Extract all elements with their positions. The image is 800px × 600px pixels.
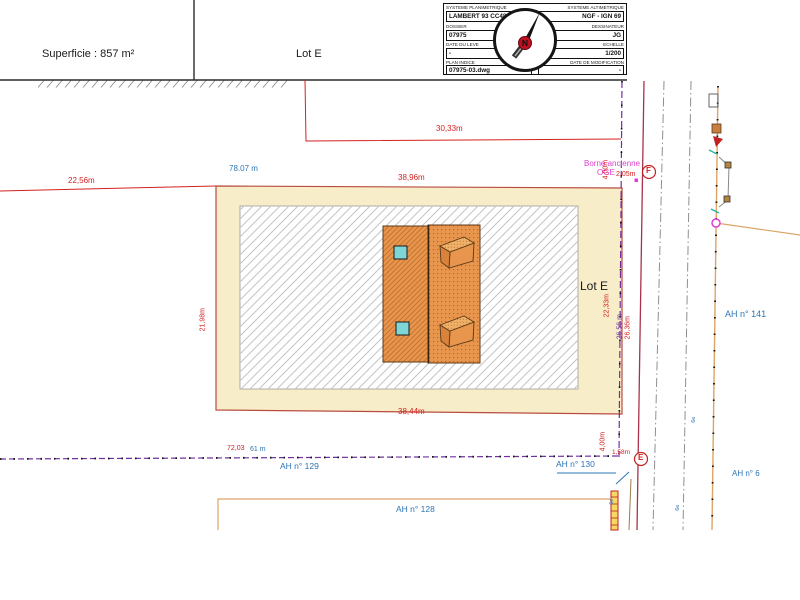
valve-symbol-top: [709, 150, 717, 154]
junction-box-top: [725, 162, 731, 168]
roof-window-bottom: [396, 322, 409, 335]
dim-22-56: 22,56m: [68, 177, 95, 185]
dim-1-58: 1,58m: [612, 450, 630, 457]
tiny-mark-3: 6e: [692, 417, 698, 423]
title-block: SYSTEME PLANIMETRIQUE LAMBERT 93 CC48 SY…: [443, 3, 627, 75]
lot-header-label: Lot E: [296, 49, 322, 61]
tiny-mark-1: 6e: [610, 499, 616, 505]
retaining-wall-symbol: [611, 491, 618, 530]
junction-box-bottom: [724, 196, 730, 202]
parcel-130-leader-line: [616, 472, 629, 484]
lot-e-label: Lot E: [580, 280, 608, 293]
north-setback-dim-line: [305, 80, 621, 141]
pole-symbol: [712, 124, 721, 133]
manhole-symbol: [712, 219, 720, 227]
parcel-128-label: AH n° 128: [396, 505, 435, 514]
dim-21-98: 21,98m: [200, 308, 207, 331]
dim-2-05: 2,05m: [616, 171, 635, 178]
dim-4-00-bottom: 4,00m: [600, 432, 607, 451]
tiny-mark-2: 6e: [676, 505, 682, 511]
flow-arrow-symbol: [713, 136, 723, 147]
parcel-6-label: AH n° 6: [732, 470, 760, 478]
survey-point-f-label: F: [646, 167, 651, 175]
parcel-130-label: AH n° 130: [556, 460, 595, 469]
dim-78-07: 78.07 m: [229, 165, 258, 173]
parcel-129-label: AH n° 129: [280, 462, 319, 471]
road-axis-line-2: [683, 81, 691, 530]
survey-point-e-label: E: [638, 454, 643, 462]
south-boundary-line: [0, 456, 619, 459]
hedge-tick-marks: [38, 81, 288, 89]
dim-61: 61 m: [250, 446, 266, 453]
driveway-line: [716, 223, 800, 235]
utility-symbols: [709, 94, 731, 213]
road-axis-line-1: [653, 81, 664, 530]
dim-22-33: 22,33m: [604, 294, 611, 317]
old-boundary-marker-dot: [635, 179, 639, 183]
dim-26-36: 26,36m: [625, 316, 632, 339]
dim-38-96: 38,96m: [398, 174, 425, 182]
superficie-label: Superficie : 857 m²: [42, 49, 134, 61]
west-dim-line: [0, 186, 216, 191]
valve-symbol-bottom: [711, 209, 719, 213]
cabinet-symbol: [709, 94, 718, 107]
cadastral-plan-canvas: Superficie : 857 m² Lot E 30,33m 78.07 m…: [0, 0, 800, 600]
dim-30-33: 30,33m: [436, 125, 463, 133]
compass-north-letter: N: [517, 38, 533, 48]
roof-window-top: [394, 246, 407, 259]
dim-72-03: 72,03: [227, 445, 245, 452]
parcel-141-label: AH n° 141: [725, 310, 766, 319]
dim-26-56: 26,56 m: [617, 314, 624, 339]
wall-edge-line: [629, 479, 631, 530]
dim-4-00-top: 4,00m: [603, 160, 610, 179]
dim-38-44: 38,44m: [398, 408, 425, 416]
north-arrow-compass-icon: N: [488, 6, 562, 74]
